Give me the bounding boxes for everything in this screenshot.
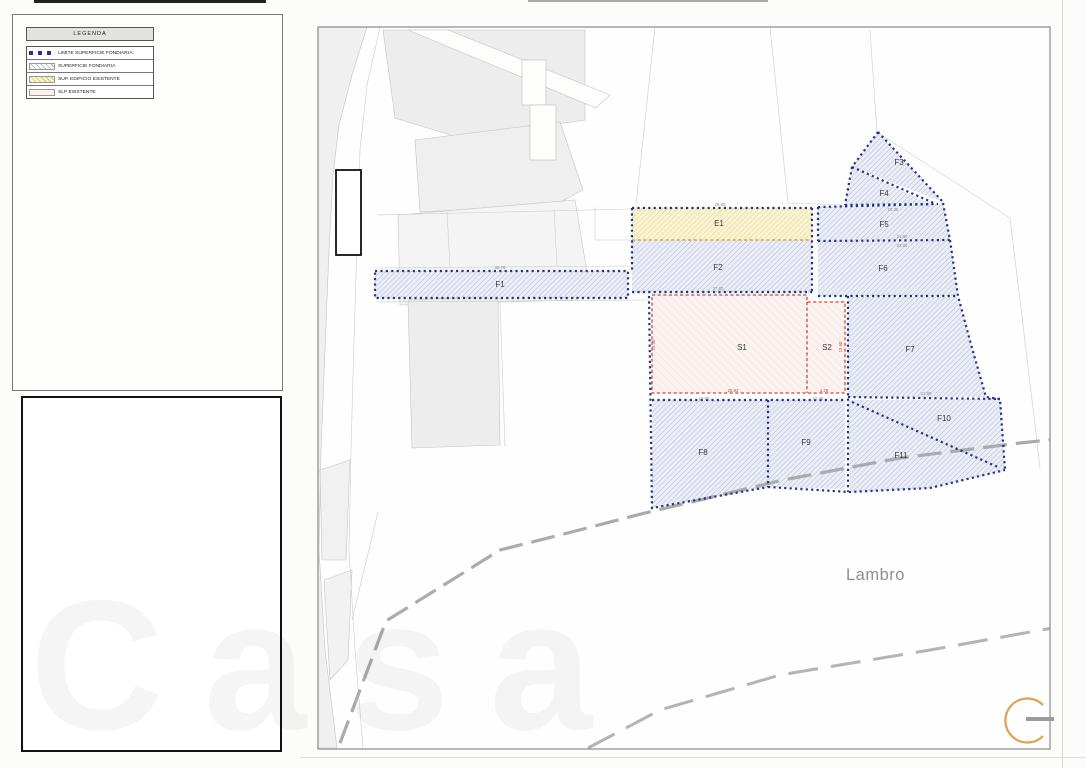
parcel-label-F3: F3 <box>894 158 904 167</box>
parcel-label-F5: F5 <box>879 220 889 229</box>
dimension-label-2: 21.90 <box>897 234 908 239</box>
dimension-label-7: 4.29 <box>820 388 829 393</box>
black-rectangle <box>336 170 361 255</box>
parcel-label-F11: F11 <box>894 451 908 460</box>
dimension-label-0: 29.30 <box>715 202 726 207</box>
dimension-label-5: 40.79 <box>495 265 506 270</box>
dimension-label-10: 21.80 <box>921 391 932 396</box>
parcel-label-F6: F6 <box>878 264 888 273</box>
dimension-label-8: 19.60 <box>699 396 710 401</box>
site-plan-map: F1E1F2F3F4F5F6F7F8F9F10F11S1S2 29.3020.3… <box>0 0 1086 768</box>
dimension-label-6: 25.92 <box>728 388 739 393</box>
parcel-label-E1: E1 <box>714 219 724 228</box>
parcel-F6 <box>818 240 958 296</box>
parcel-label-F8: F8 <box>698 448 708 457</box>
dimension-label-1: 20.35 <box>888 207 899 212</box>
dimension-label-12: 13.60 <box>838 341 843 352</box>
parcel-S1 <box>652 295 807 393</box>
map-content: F1E1F2F3F4F5F6F7F8F9F10F11S1S2 29.3020.3… <box>318 27 1086 749</box>
dimension-label-11: 19.30 <box>651 339 656 350</box>
parcels-slp <box>652 295 845 393</box>
parcel-label-F4: F4 <box>879 189 889 198</box>
parcel-label-F10: F10 <box>937 414 951 423</box>
parcel-label-F2: F2 <box>713 263 723 272</box>
parcel-label-S2: S2 <box>822 343 832 352</box>
river-label: Lambro <box>846 566 905 584</box>
dimension-label-9: 12.45 <box>813 396 824 401</box>
logo-dash <box>1026 717 1054 721</box>
parcel-label-F7: F7 <box>905 345 915 354</box>
parcel-label-F1: F1 <box>495 280 505 289</box>
parcel-label-F9: F9 <box>801 438 811 447</box>
dimension-label-4: 27.80 <box>713 286 724 291</box>
dimension-label-3: 23.95 <box>897 243 908 248</box>
scanned-plan-page: LEGENDA LIMITE SUPERFICIE FONDIARIA:SUPE… <box>0 0 1086 768</box>
parcel-label-S1: S1 <box>737 343 747 352</box>
